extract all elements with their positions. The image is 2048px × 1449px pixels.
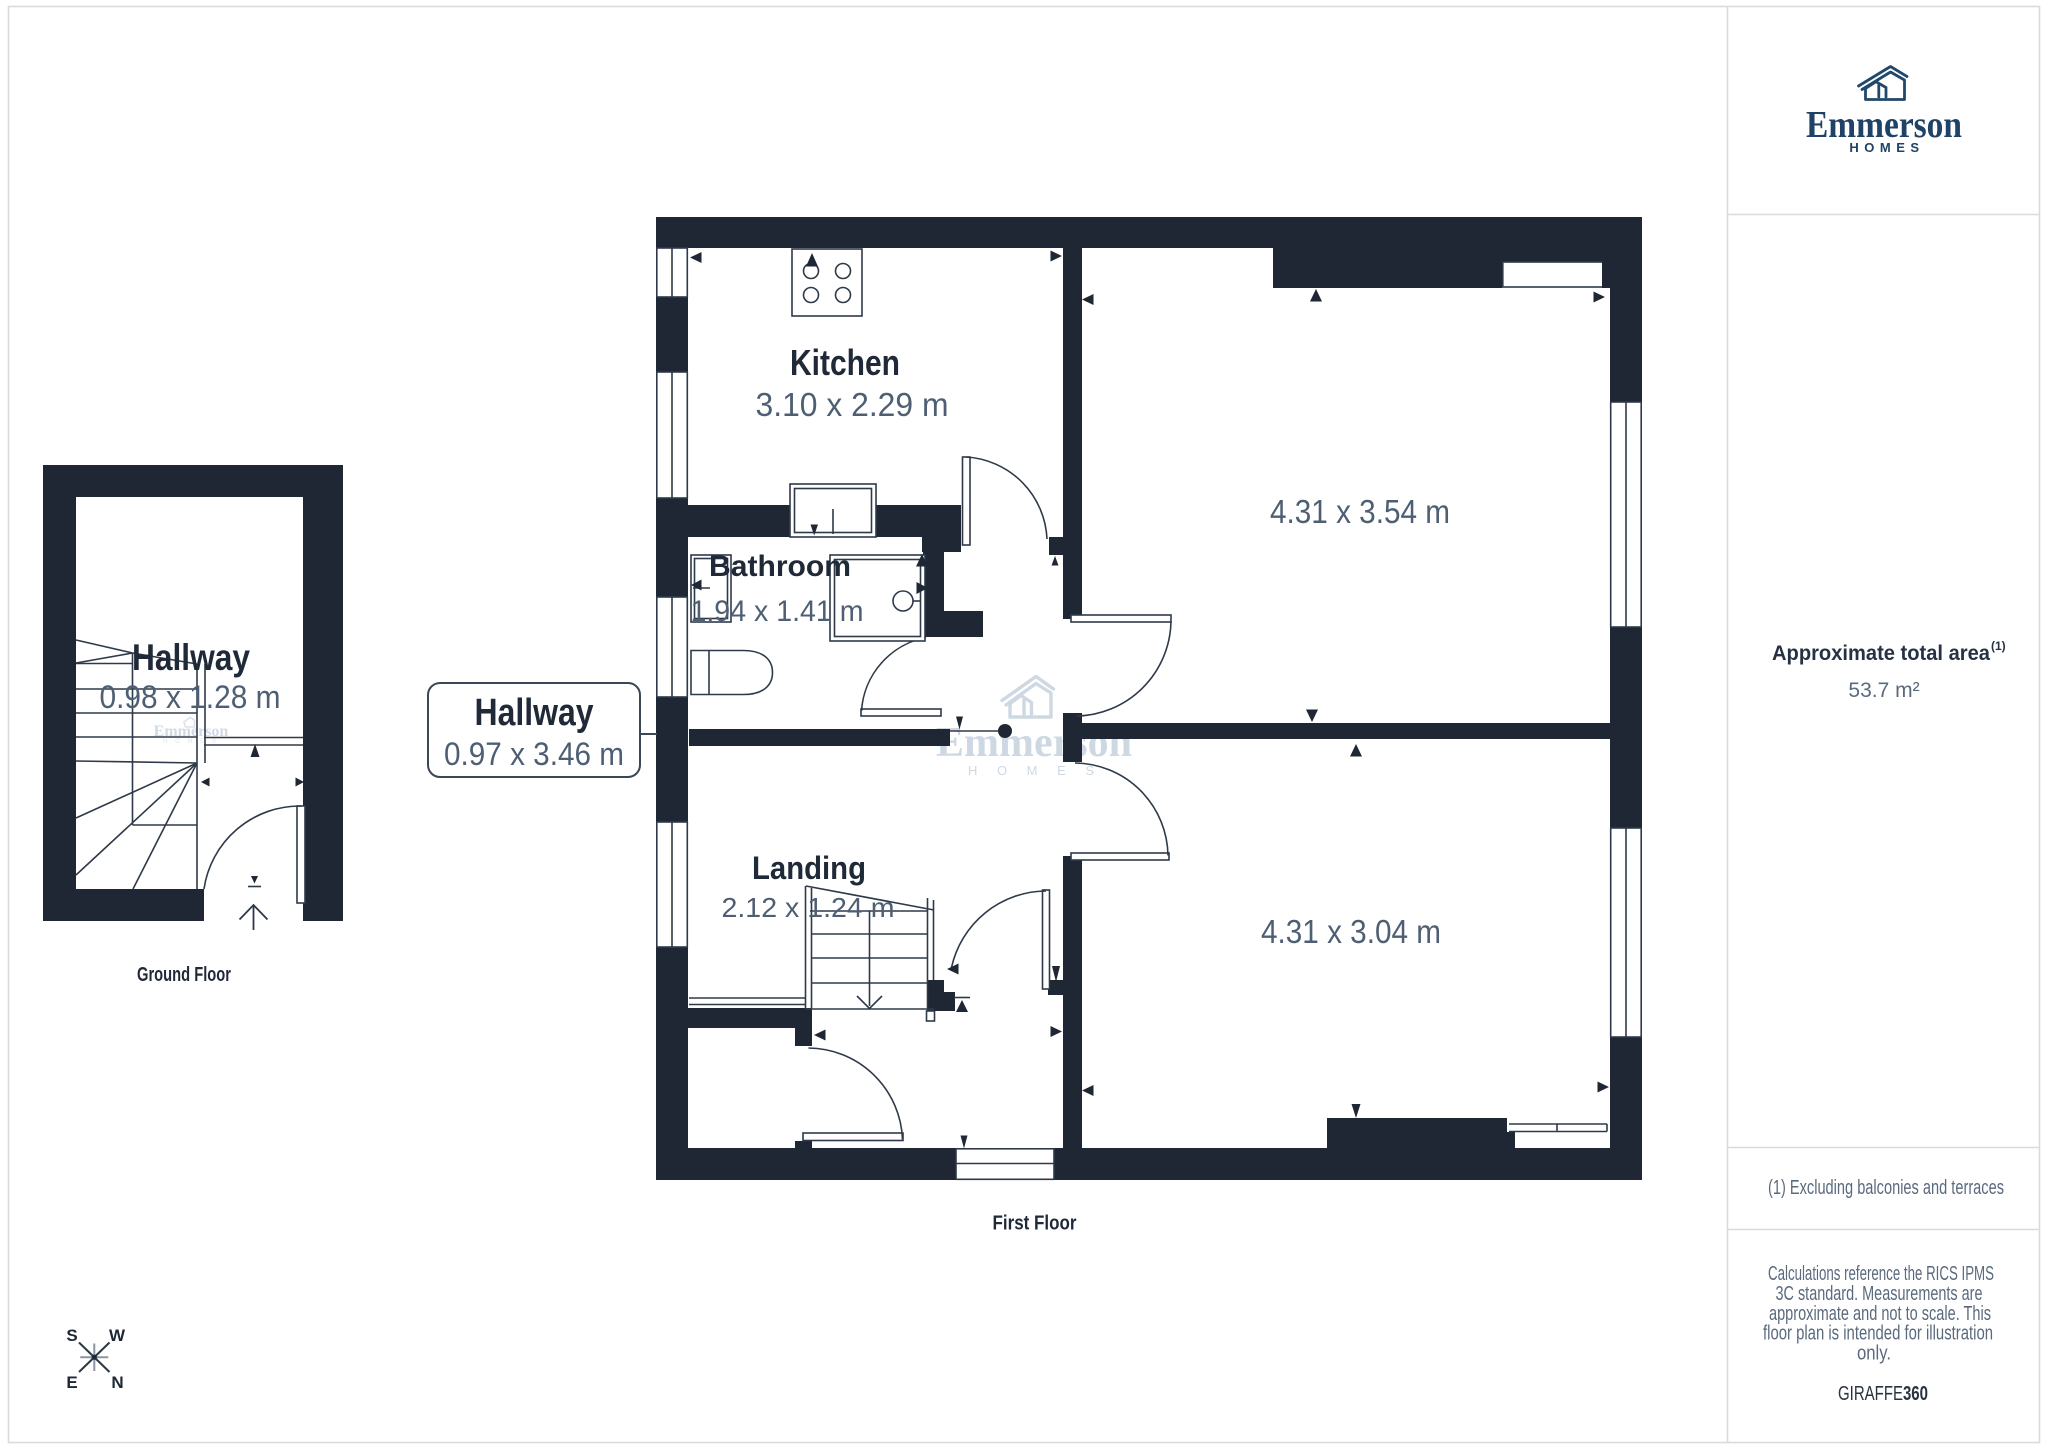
svg-text:S: S: [66, 1326, 77, 1345]
svg-text:2.12 x 1.24 m: 2.12 x 1.24 m: [722, 892, 895, 923]
svg-text:3.10 x 2.29 m: 3.10 x 2.29 m: [756, 386, 949, 423]
svg-text:GIRAFFE360: GIRAFFE360: [1838, 1383, 1928, 1405]
svg-text:Landing: Landing: [752, 850, 866, 886]
svg-text:(1) Excluding balconies and te: (1) Excluding balconies and terraces: [1768, 1177, 2004, 1199]
svg-text:First Floor: First Floor: [993, 1213, 1077, 1235]
svg-text:Kitchen: Kitchen: [790, 342, 900, 383]
svg-text:Hallway: Hallway: [475, 692, 594, 734]
svg-text:H O M E S: H O M E S: [163, 739, 219, 745]
svg-text:floor plan is intended for ill: floor plan is intended for illustration: [1763, 1323, 1993, 1345]
svg-text:1.94 x 1.41 m: 1.94 x 1.41 m: [691, 595, 864, 628]
svg-text:0.98 x 1.28 m: 0.98 x 1.28 m: [100, 679, 281, 715]
svg-text:Calculations reference the RIC: Calculations reference the RICS IPMS: [1768, 1263, 1994, 1285]
svg-text:W: W: [109, 1326, 126, 1345]
svg-text:3C standard. Measurements are: 3C standard. Measurements are: [1776, 1283, 1983, 1305]
svg-text:Ground Floor: Ground Floor: [137, 964, 231, 986]
svg-text:Approximate total area: Approximate total area: [1772, 642, 1990, 665]
svg-text:HOMES: HOMES: [1849, 140, 1924, 155]
svg-text:E: E: [66, 1373, 77, 1392]
svg-text:53.7 m²: 53.7 m²: [1848, 679, 1919, 702]
svg-text:Hallway: Hallway: [132, 637, 250, 678]
svg-text:(1): (1): [1991, 639, 2006, 653]
svg-text:N: N: [111, 1373, 123, 1392]
svg-text:4.31 x 3.04 m: 4.31 x 3.04 m: [1261, 913, 1441, 950]
svg-text:H O M E S: H O M E S: [968, 763, 1102, 778]
svg-text:0.97 x 3.46 m: 0.97 x 3.46 m: [444, 736, 624, 772]
svg-text:4.31 x 3.54 m: 4.31 x 3.54 m: [1270, 493, 1450, 530]
svg-text:only.: only.: [1857, 1343, 1891, 1365]
svg-text:Bathroom: Bathroom: [709, 550, 851, 583]
